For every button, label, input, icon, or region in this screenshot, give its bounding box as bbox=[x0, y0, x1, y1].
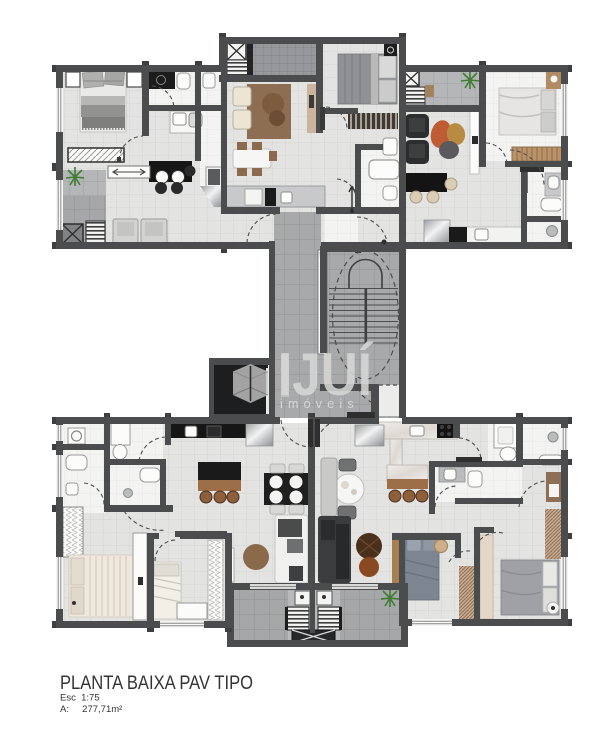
svg-text:A: 277,71m²: A: 277,71m² bbox=[60, 704, 122, 715]
svg-text:Esc 1:75: Esc 1:75 bbox=[60, 693, 100, 704]
svg-text:PLANTA BAIXA PAV TIPO: PLANTA BAIXA PAV TIPO bbox=[60, 672, 253, 694]
svg-text:imóveis: imóveis bbox=[280, 397, 359, 411]
